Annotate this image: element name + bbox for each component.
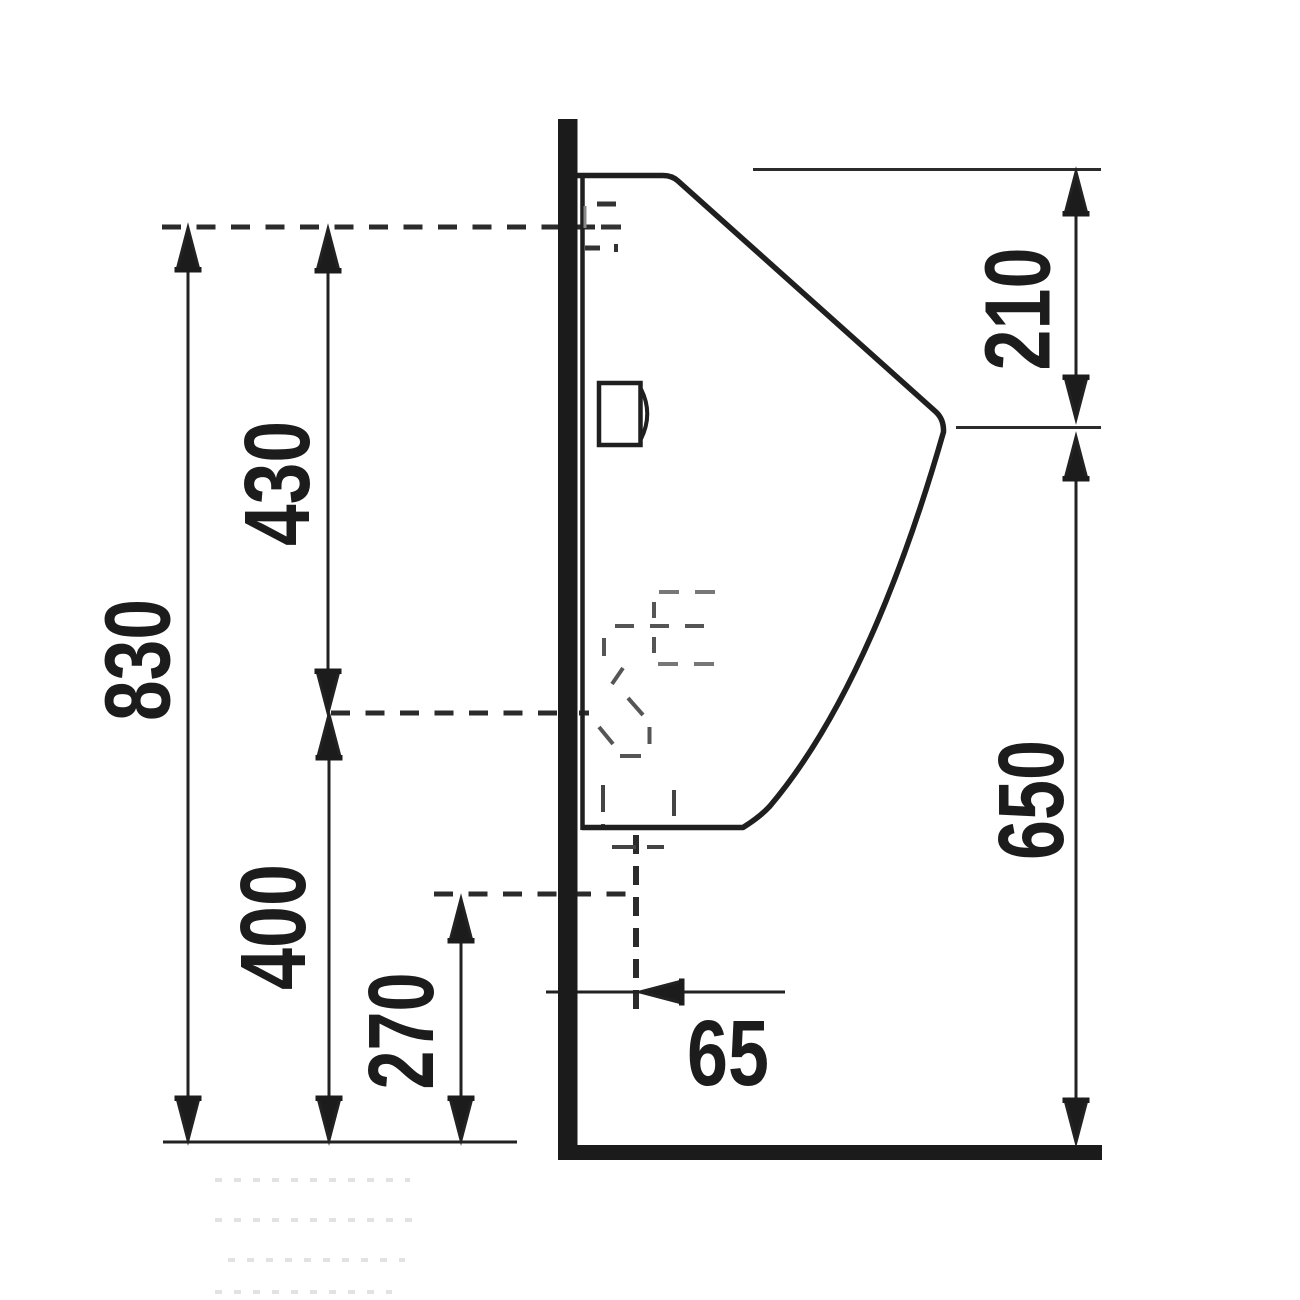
svg-text:650: 650 — [979, 740, 1083, 860]
svg-text:430: 430 — [225, 421, 329, 546]
svg-text:830: 830 — [86, 599, 190, 721]
svg-text:65: 65 — [687, 1001, 769, 1105]
svg-text:400: 400 — [221, 864, 325, 990]
svg-text:270: 270 — [349, 973, 453, 1090]
svg-text:210: 210 — [966, 248, 1070, 371]
